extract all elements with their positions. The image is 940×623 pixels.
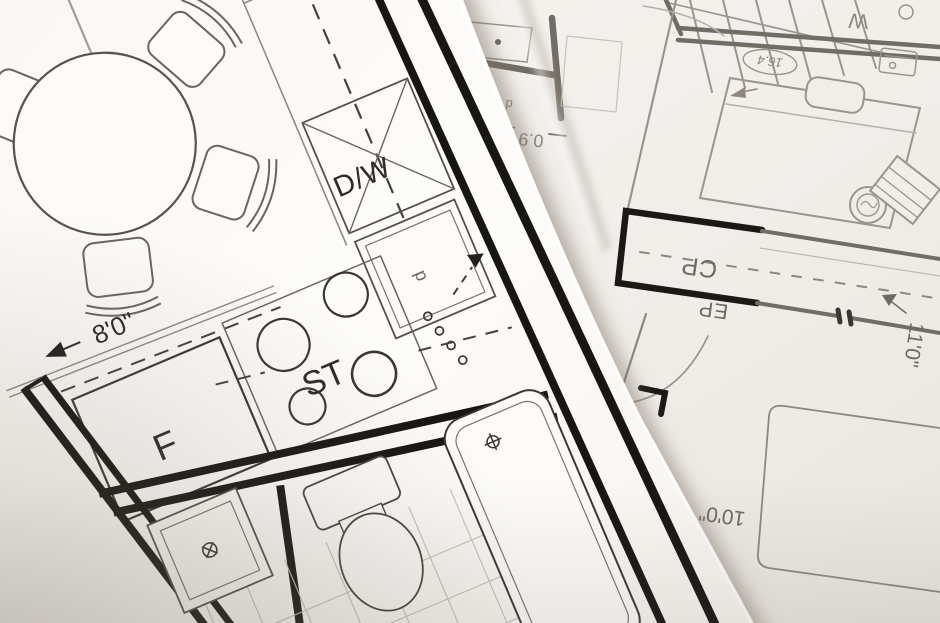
closet-cp-label: CP: [679, 251, 719, 284]
fixture-d-label: d: [505, 97, 514, 113]
dim-0-9-label: 0.9: [518, 129, 545, 151]
bottom-vignette: [0, 480, 940, 623]
blueprint-photo: CP EP W 16.4 d 0.9 11'0" 10'0": [0, 0, 940, 623]
washer-label: W: [847, 8, 869, 32]
closet-ep-label: EP: [697, 296, 730, 323]
blueprint-scene: CP EP W 16.4 d 0.9 11'0" 10'0": [0, 0, 940, 623]
